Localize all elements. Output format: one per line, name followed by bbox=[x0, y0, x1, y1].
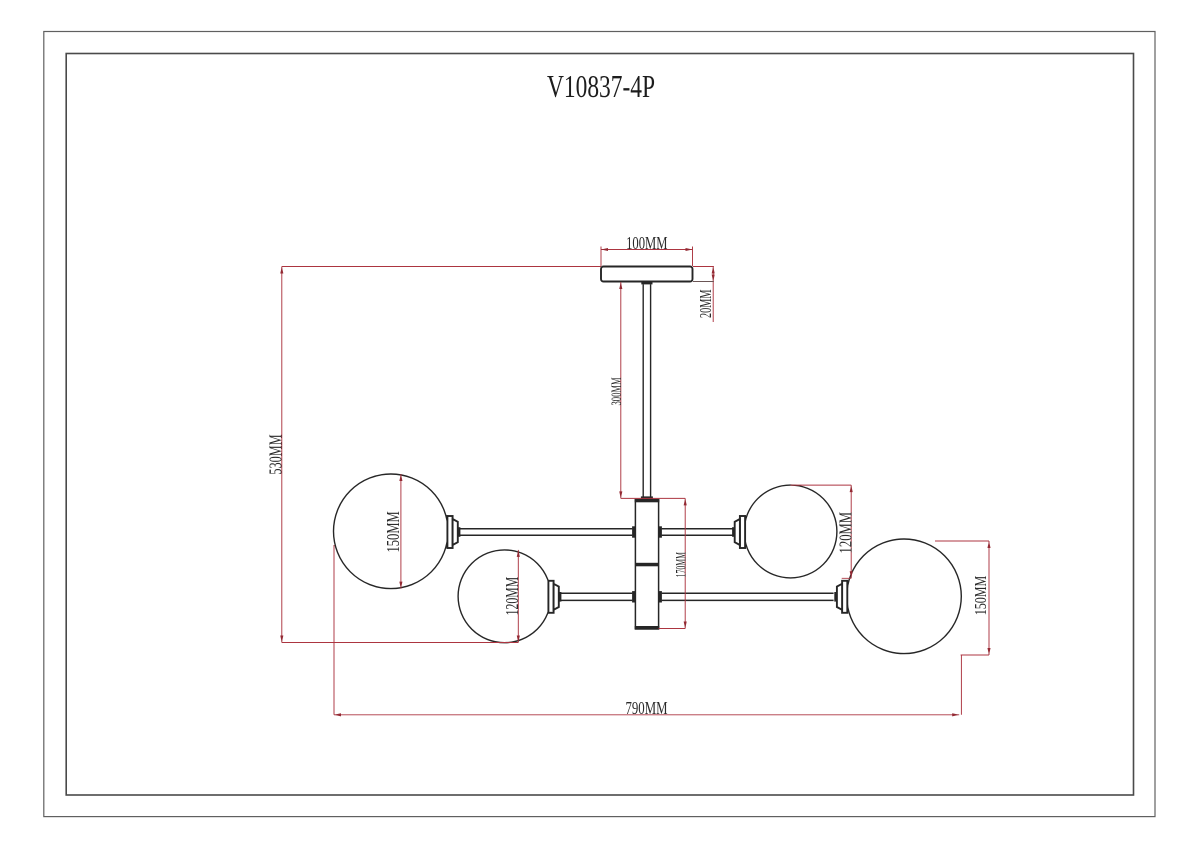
svg-text:120MM: 120MM bbox=[502, 577, 522, 616]
svg-text:530MM: 530MM bbox=[266, 434, 286, 474]
svg-text:170MM: 170MM bbox=[673, 552, 689, 578]
svg-text:V10837-4P: V10837-4P bbox=[547, 69, 655, 104]
svg-text:150MM: 150MM bbox=[383, 511, 403, 552]
svg-text:120MM: 120MM bbox=[835, 512, 855, 554]
svg-text:300MM: 300MM bbox=[608, 377, 625, 405]
svg-text:100MM: 100MM bbox=[626, 233, 667, 253]
svg-text:790MM: 790MM bbox=[626, 698, 668, 718]
svg-text:20MM: 20MM bbox=[696, 289, 715, 318]
svg-text:150MM: 150MM bbox=[971, 576, 990, 616]
